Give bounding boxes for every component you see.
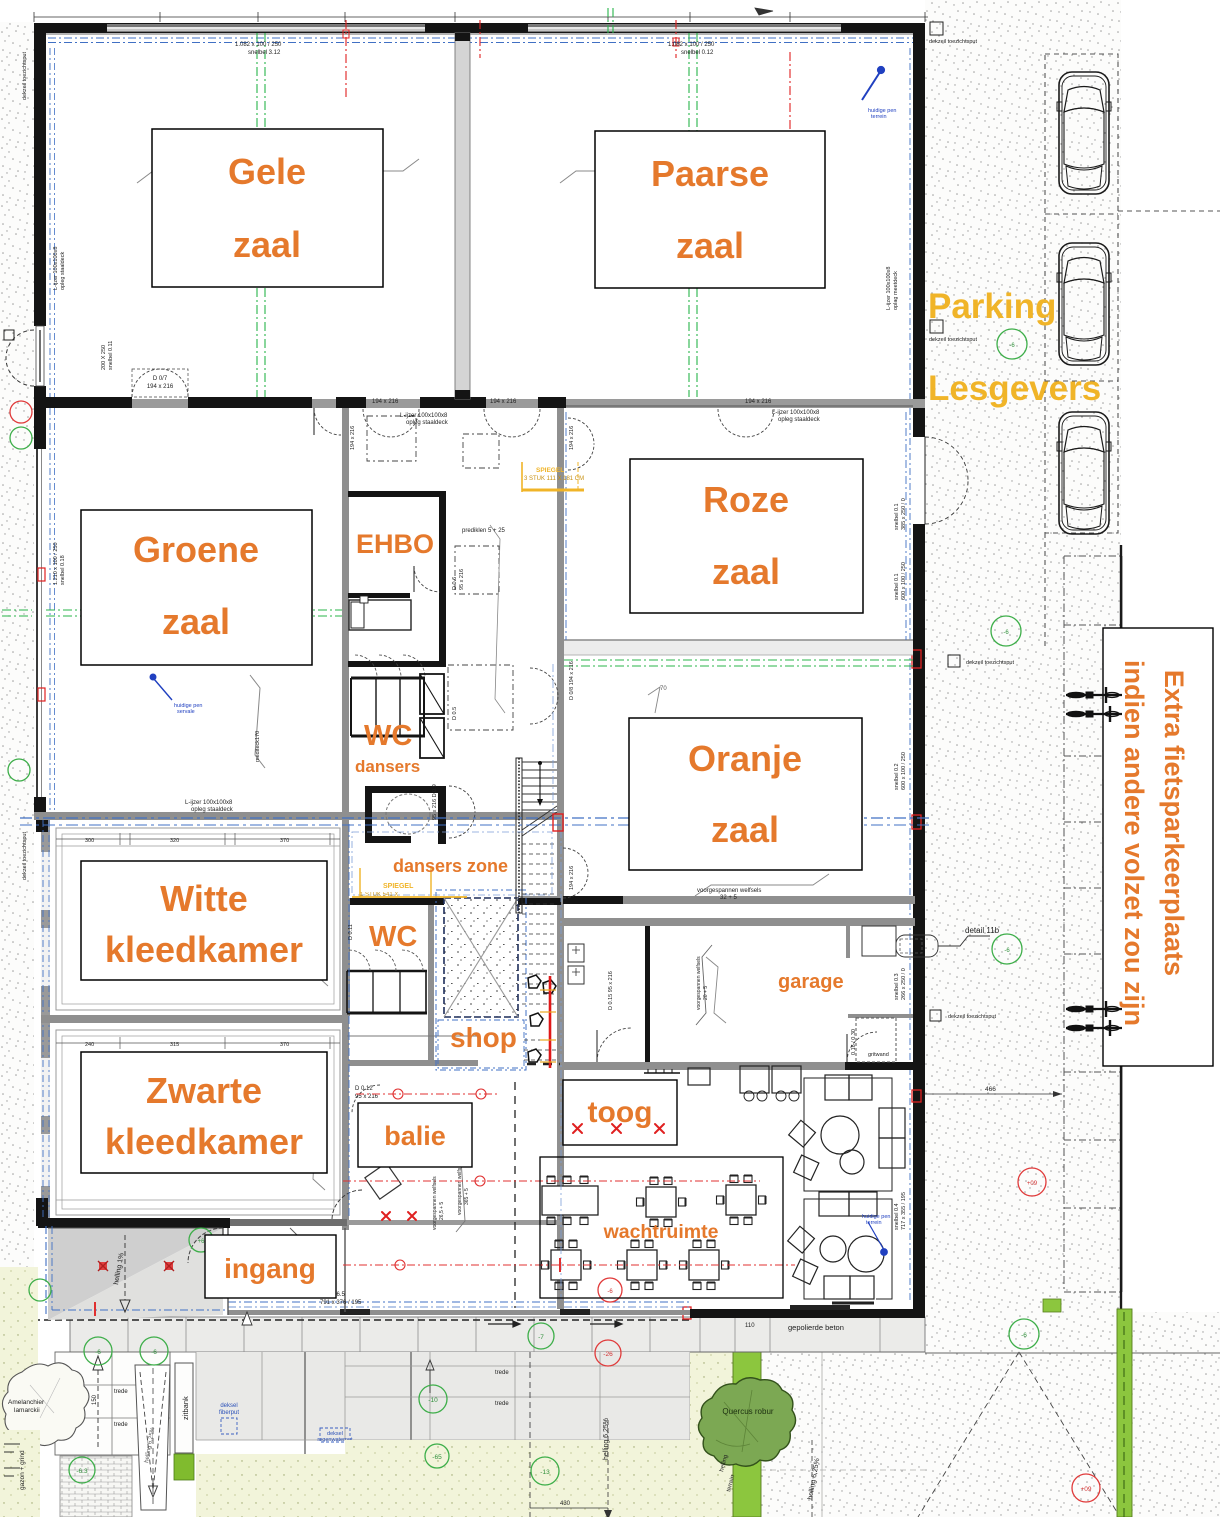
svg-text:266 x 250 / 0: 266 x 250 / 0 [901, 968, 907, 1000]
svg-text:-10: -10 [428, 1397, 438, 1404]
svg-text:trede: trede [114, 1389, 128, 1395]
svg-text:Parking: Parking [928, 287, 1056, 326]
svg-text:indien andere volzet zou zijn: indien andere volzet zou zijn [1119, 660, 1149, 1026]
svg-text:detail 11b: detail 11b [965, 926, 1000, 935]
svg-text:opleg staaldeck: opleg staaldeck [60, 252, 66, 290]
svg-text:-6: -6 [151, 1349, 157, 1356]
svg-text:194 x 216: 194 x 216 [490, 399, 517, 405]
svg-text:L-ijzer 100x100x8: L-ijzer 100x100x8 [772, 410, 820, 416]
svg-text:370: 370 [280, 838, 289, 844]
svg-text:mediteck170: mediteck170 [255, 731, 261, 762]
svg-text:snelbel 0.2: snelbel 0.2 [894, 763, 900, 790]
svg-text:385 x 250 / 0: 385 x 250 / 0 [901, 498, 907, 530]
svg-text:95 x 216 D 0.9: 95 x 216 D 0.9 [432, 784, 438, 820]
svg-text:-6: -6 [1021, 1332, 1027, 1339]
svg-text:zaal: zaal [711, 809, 779, 850]
svg-text:Oranje: Oranje [688, 738, 802, 779]
svg-text:+09: +09 [1027, 1181, 1038, 1187]
svg-text:dansers: dansers [355, 757, 420, 776]
svg-text:snelbel 3.12: snelbel 3.12 [248, 50, 281, 56]
svg-text:SPIEGEL: SPIEGEL [383, 883, 414, 890]
svg-text:servale: servale [177, 709, 195, 715]
svg-text:600 x 100 / 250: 600 x 100 / 250 [901, 752, 907, 790]
svg-text:95 x 216: 95 x 216 [355, 1094, 379, 1100]
svg-text:gritwand: gritwand [868, 1052, 889, 1058]
svg-text:snelbel 0.1: snelbel 0.1 [894, 503, 900, 530]
svg-text:320: 320 [170, 838, 179, 844]
svg-text:791 x 376 / 195: 791 x 376 / 195 [320, 1300, 362, 1306]
svg-text:-6: -6 [607, 1289, 613, 1295]
svg-text:Paarse: Paarse [651, 153, 769, 194]
svg-text:snelbel 0.3: snelbel 0.3 [894, 973, 900, 1000]
svg-text:shop: shop [450, 1022, 517, 1053]
svg-text:voorgespannen welfsels: voorgespannen welfsels [457, 1161, 463, 1215]
svg-text:194 x 216: 194 x 216 [350, 426, 356, 450]
svg-text:-6: -6 [1009, 343, 1015, 349]
svg-text:315: 315 [170, 1042, 179, 1048]
svg-text:110: 110 [745, 1323, 755, 1329]
svg-text:D 0.11: D 0.11 [348, 924, 354, 940]
svg-text:32 + 5: 32 + 5 [720, 895, 738, 901]
svg-text:ingang: ingang [224, 1253, 316, 1284]
svg-text:70: 70 [660, 686, 667, 692]
svg-text:-13: -13 [540, 1469, 550, 1476]
svg-text:zaal: zaal [233, 224, 301, 265]
svg-text:240: 240 [85, 1042, 94, 1048]
svg-text:150: 150 [92, 1394, 98, 1405]
svg-text:wachtruimte: wachtruimte [603, 1221, 719, 1243]
svg-text:snelbel 0.11: snelbel 0.11 [108, 341, 114, 370]
svg-text:1.082 x 100 / 250: 1.082 x 100 / 250 [668, 42, 715, 48]
svg-text:snelbel 0.18: snelbel 0.18 [60, 555, 66, 585]
svg-text:snelbel 0.1: snelbel 0.1 [894, 573, 900, 600]
svg-text:D 0/8 194 x 216: D 0/8 194 x 216 [569, 661, 575, 700]
svg-text:kleedkamer: kleedkamer [105, 1121, 303, 1162]
svg-text:voorgespannen welfsels: voorgespannen welfsels [432, 1176, 438, 1230]
svg-text:200 X 250: 200 X 250 [101, 345, 107, 370]
svg-text:1.210 x 100 / 250: 1.210 x 100 / 250 [53, 542, 59, 585]
svg-text:194 x 216: 194 x 216 [147, 384, 174, 390]
svg-text:717 x 355 / 195: 717 x 355 / 195 [901, 1192, 907, 1230]
svg-text:fiberput: fiberput [219, 1410, 239, 1416]
svg-text:snelbel 0.12: snelbel 0.12 [681, 50, 714, 56]
svg-text:-6: -6 [1004, 948, 1010, 954]
svg-text:dekzeil toezichtsput: dekzeil toezichtsput [929, 39, 977, 45]
svg-text:SPIEGEL: SPIEGEL [536, 467, 564, 474]
svg-text:Zwarte: Zwarte [146, 1070, 262, 1111]
svg-text:D 0.5: D 0.5 [452, 707, 458, 720]
svg-text:-6: -6 [1003, 630, 1009, 636]
svg-text:-6: -6 [95, 1349, 101, 1356]
svg-text:prediklen 5 + 25: prediklen 5 + 25 [462, 528, 506, 534]
svg-text:dekzeil toezichtsput: dekzeil toezichtsput [966, 660, 1014, 666]
svg-text:+09: +09 [1080, 1486, 1091, 1493]
svg-text:zaal: zaal [712, 551, 780, 592]
svg-text:-65: -65 [432, 1454, 442, 1461]
svg-text:oplag meetdeck: oplag meetdeck [893, 271, 899, 310]
svg-text:D 0.6: D 0.6 [452, 577, 458, 590]
svg-text:365 + 5: 365 + 5 [464, 1188, 470, 1205]
svg-text:gepolierde beton: gepolierde beton [788, 1323, 844, 1332]
svg-text:600 x 100 / 250: 600 x 100 / 250 [901, 562, 907, 600]
svg-text:95 x 216: 95 x 216 [459, 569, 465, 590]
svg-text:L-ijzer 100x100x8: L-ijzer 100x100x8 [53, 247, 59, 290]
svg-text:370: 370 [280, 1042, 289, 1048]
svg-text:zitbank: zitbank [181, 1396, 190, 1420]
svg-text:300: 300 [85, 838, 94, 844]
svg-text:194 x 216: 194 x 216 [372, 399, 399, 405]
svg-text:26,5 + 5: 26,5 + 5 [439, 1202, 445, 1220]
svg-text:466: 466 [985, 1086, 996, 1093]
svg-text:+6: +6 [198, 1239, 206, 1245]
svg-text:Gele: Gele [228, 151, 306, 192]
svg-text:dekzeil toezichtsput: dekzeil toezichtsput [929, 337, 977, 343]
svg-text:trede: trede [114, 1422, 128, 1428]
svg-text:lamarckii: lamarckii [14, 1407, 40, 1414]
svg-text:terrein: terrein [871, 114, 887, 120]
svg-text:WC: WC [364, 720, 412, 752]
svg-text:opleg staaldeck: opleg staaldeck [778, 417, 821, 423]
svg-text:snelbel 0.4: snelbel 0.4 [894, 1203, 900, 1230]
svg-text:garage: garage [778, 971, 844, 993]
svg-text:1.082 x 100 / 250: 1.082 x 100 / 250 [235, 42, 282, 48]
svg-text:zaal: zaal [162, 601, 230, 642]
svg-text:dansers zone: dansers zone [393, 856, 508, 876]
svg-text:voorgespannen welfsels: voorgespannen welfsels [696, 956, 702, 1010]
svg-text:L-ijzer 100x100x8: L-ijzer 100x100x8 [400, 413, 448, 419]
svg-text:Groene: Groene [133, 529, 259, 570]
svg-text:voorgespannen welfsels: voorgespannen welfsels [697, 888, 761, 894]
svg-text:trede: trede [495, 1401, 509, 1407]
svg-text:EHBO: EHBO [356, 529, 434, 559]
svg-text:L-ijzer 100x100x8: L-ijzer 100x100x8 [185, 800, 233, 806]
svg-text:kleedkamer: kleedkamer [105, 929, 303, 970]
svg-text:194 x 216: 194 x 216 [569, 866, 575, 890]
svg-text:dekzeil toezichtsput: dekzeil toezichtsput [22, 52, 28, 100]
svg-text:20 + 5: 20 + 5 [703, 986, 709, 1000]
svg-text:-7: -7 [538, 1334, 544, 1341]
svg-text:deksel: deksel [220, 1403, 237, 1409]
svg-text:D 0/7: D 0/7 [153, 376, 168, 382]
svg-text:0.16 / 0.30: 0.16 / 0.30 [851, 1029, 857, 1055]
svg-text:dekzeil toezichtsput: dekzeil toezichtsput [22, 832, 28, 880]
svg-text:3 STUK 111 X 181 CM: 3 STUK 111 X 181 CM [524, 476, 584, 482]
svg-text:Quercus robur: Quercus robur [722, 1407, 773, 1416]
svg-text:Witte: Witte [160, 878, 248, 919]
svg-text:gazon + grind: gazon + grind [19, 1450, 26, 1490]
svg-text:dekzeil toezichtsput: dekzeil toezichtsput [948, 1014, 996, 1020]
svg-text:zaal: zaal [676, 225, 744, 266]
svg-text:1 STUK 541 X: 1 STUK 541 X [360, 892, 398, 898]
svg-text:194 x 216: 194 x 216 [745, 399, 772, 405]
svg-text:D 0.15 95 x 216: D 0.15 95 x 216 [608, 971, 614, 1010]
svg-text:Roze: Roze [703, 479, 789, 520]
svg-text:Extra fietsparkeerplaats: Extra fietsparkeerplaats [1159, 670, 1189, 976]
svg-text:194 x 216: 194 x 216 [569, 426, 575, 450]
svg-text:balie: balie [384, 1121, 446, 1151]
svg-text:terrein: terrein [866, 1220, 882, 1226]
svg-text:opleg staaldeck: opleg staaldeck [406, 420, 449, 426]
svg-text:D 0.12: D 0.12 [355, 1086, 373, 1092]
svg-text:Lesgevers: Lesgevers [928, 369, 1101, 408]
svg-text:L-ijzer 100x100x8: L-ijzer 100x100x8 [886, 267, 892, 310]
svg-text:helling 6,25%: helling 6,25% [603, 1418, 610, 1460]
svg-text:-26: -26 [603, 1351, 613, 1358]
svg-text:430: 430 [560, 1501, 571, 1507]
svg-text:-6.3: -6.3 [76, 1468, 88, 1475]
svg-text:opleg staaldeck: opleg staaldeck [191, 807, 234, 813]
svg-text:WC: WC [369, 921, 417, 953]
svg-text:trede: trede [495, 1370, 509, 1376]
svg-text:Amelanchier: Amelanchier [8, 1399, 45, 1406]
